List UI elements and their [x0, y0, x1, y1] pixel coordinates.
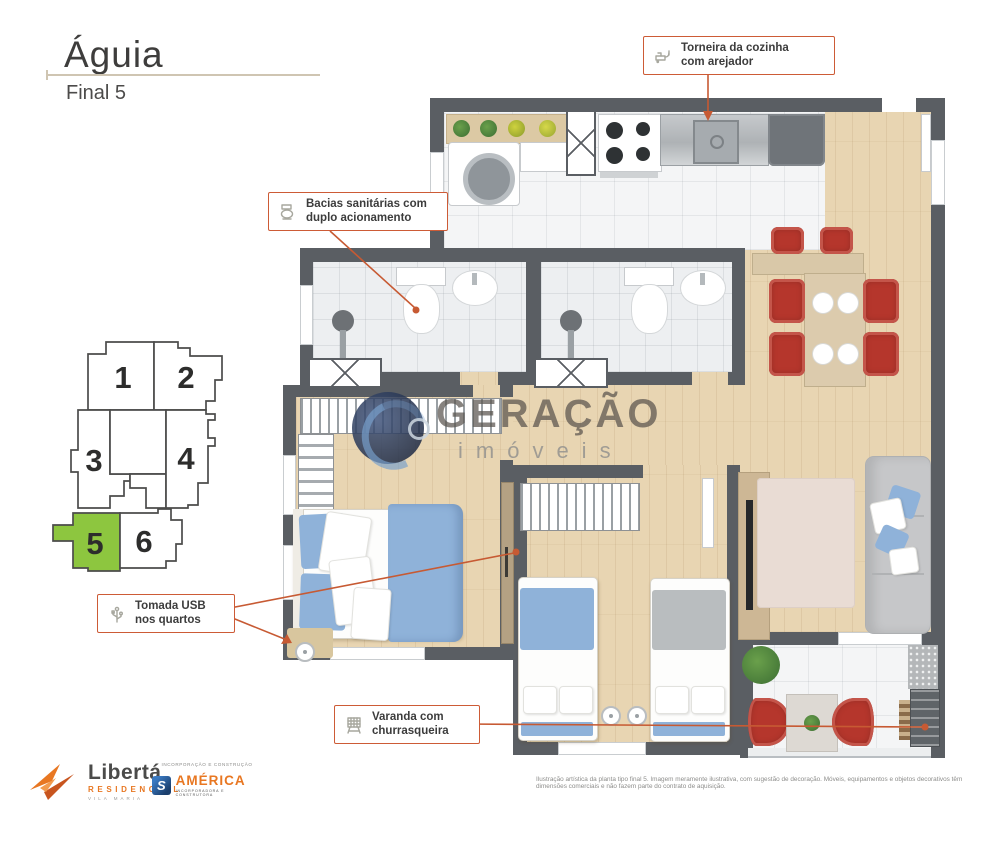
breakfast-bar	[752, 253, 864, 275]
kitchen-sink	[693, 120, 739, 164]
wall-bath-top	[300, 248, 745, 262]
wall-master-top-b	[500, 385, 513, 397]
dining-table	[804, 273, 866, 387]
dinner-plate	[813, 293, 833, 313]
wall-bath-right	[732, 262, 745, 374]
bedroom2-door-leaf	[702, 478, 714, 548]
bath2-shower	[560, 310, 582, 332]
window-master-bottom	[330, 647, 425, 660]
bedroom2-pillow	[523, 686, 557, 714]
callout-toilet-line2: duplo acionamento	[306, 212, 427, 226]
bedroom2-bed-blue-duvet	[520, 588, 594, 650]
bar-stool	[820, 227, 853, 254]
washing-machine-door	[463, 153, 515, 205]
balcony-table-plant	[804, 715, 820, 731]
flyer-page: { "header": { "title": "Águia", "subtitl…	[0, 0, 1000, 844]
master-door-handle	[505, 547, 508, 577]
laundry-counter	[520, 142, 568, 172]
america-name: AMÉRICA	[176, 774, 262, 788]
dining-chair	[863, 279, 899, 323]
dinner-plate	[838, 344, 858, 364]
bar-stool	[771, 227, 804, 254]
stove-burner	[606, 122, 623, 139]
master-duvet	[388, 504, 463, 642]
stove-burner	[636, 122, 650, 136]
plant-pot-icon	[508, 120, 525, 137]
master-sliding-door	[501, 482, 514, 644]
window-bedroom2-bottom	[558, 742, 646, 755]
wall-bath-bottom-c	[728, 372, 745, 385]
balcony-armchair	[832, 698, 874, 746]
bath1-shower	[332, 310, 354, 332]
wall-top-right	[916, 98, 945, 112]
tv-screen	[746, 500, 753, 610]
bath1-sink	[452, 270, 498, 306]
floor-plan	[0, 0, 1000, 844]
bath1-shaft	[308, 358, 382, 388]
wall-top-left	[430, 98, 882, 112]
bedroom2-wardrobe	[520, 483, 640, 531]
stove-vent	[600, 172, 658, 178]
kitchen-faucet	[710, 135, 724, 149]
bedroom2-pillow	[655, 686, 689, 714]
callout-usb-line2: nos quartos	[135, 614, 206, 628]
dinner-plate	[813, 344, 833, 364]
bath2-shaft	[534, 358, 608, 388]
wall-bedroom2-top	[527, 465, 643, 478]
usb-floor-socket	[601, 706, 621, 726]
callout-grill-line1: Varanda com	[372, 711, 449, 725]
bedroom2-bed-gray-foot	[653, 722, 725, 736]
dining-chair	[863, 332, 899, 376]
dining-chair	[769, 279, 805, 323]
liberta-bird-icon	[26, 758, 80, 804]
callout-toilet-line1: Bacias sanitárias com	[306, 198, 427, 212]
bath1-sink-faucet	[472, 273, 477, 285]
kitchen-duct-shaft	[566, 110, 596, 176]
bedroom2-pillow	[691, 686, 725, 714]
bath1-toilet-bowl	[403, 284, 440, 334]
callout-usb-line1: Tomada USB	[135, 600, 206, 614]
window-bath-left	[300, 285, 313, 345]
window-master-left-1	[283, 455, 296, 515]
usb-icon	[107, 604, 127, 624]
barbecue-grill-stone	[908, 645, 938, 689]
legal-disclaimer: Ilustração artística da planta tipo fina…	[536, 776, 972, 790]
dinner-plate	[838, 293, 858, 313]
bath2-sink	[680, 270, 726, 306]
america-mark-icon: S	[152, 776, 171, 795]
faucet-icon	[653, 46, 673, 66]
america-header: INCORPORAÇÃO E CONSTRUÇÃO	[152, 762, 262, 767]
stove-burner	[636, 147, 650, 161]
america-logo: INCORPORAÇÃO E CONSTRUÇÃO S AMÉRICA INCO…	[152, 762, 262, 797]
callout-grill-line2: churrasqueira	[372, 725, 449, 739]
plant-pot-icon	[453, 120, 470, 137]
dining-chair	[769, 332, 805, 376]
america-subtitle: INCORPORADORA E CONSTRUTORA	[176, 789, 262, 797]
master-wardrobe	[300, 398, 502, 434]
stove	[598, 114, 662, 172]
balcony-railing	[748, 748, 931, 758]
toilet-icon	[278, 202, 298, 222]
refrigerator	[768, 114, 825, 166]
washing-machine	[448, 142, 520, 206]
stove-burner	[606, 147, 623, 164]
entry-door-leaf	[921, 114, 931, 172]
balcony-table	[786, 694, 838, 752]
grill-utensil-shelf	[899, 700, 910, 740]
plant-pot-icon	[539, 120, 556, 137]
kitchen-sink-counter	[660, 114, 769, 166]
bedroom2-bed-blue-foot	[521, 722, 593, 736]
window-entry-right	[931, 140, 945, 205]
callout-kitchen-faucet: Torneira da cozinha com arejador	[643, 36, 835, 75]
balcony-plant	[742, 646, 780, 684]
plant-pot-icon	[480, 120, 497, 137]
callout-kitchen-faucet-line2: com arejador	[681, 56, 789, 70]
grill-icon	[344, 715, 364, 735]
bedroom2-pillow	[559, 686, 593, 714]
usb-floor-socket	[295, 642, 315, 662]
living-rug	[757, 478, 855, 608]
usb-floor-socket	[627, 706, 647, 726]
entry-door-opening	[882, 98, 916, 112]
callout-balcony-grill: Varanda com churrasqueira	[334, 705, 480, 744]
callout-kitchen-faucet-line1: Torneira da cozinha	[681, 42, 789, 56]
laundry-plant-shelf	[446, 114, 568, 144]
sofa-pillow-white	[888, 546, 919, 576]
callout-usb-outlet: Tomada USB nos quartos	[97, 594, 235, 633]
callout-toilet-flush: Bacias sanitárias com duplo acionamento	[268, 192, 448, 231]
barbecue-grill	[910, 689, 940, 747]
master-pillow-white	[350, 587, 392, 642]
bath2-toilet-bowl	[631, 284, 668, 334]
bedroom2-bed-gray-duvet	[652, 590, 726, 650]
bath2-sink-faucet	[700, 273, 705, 285]
